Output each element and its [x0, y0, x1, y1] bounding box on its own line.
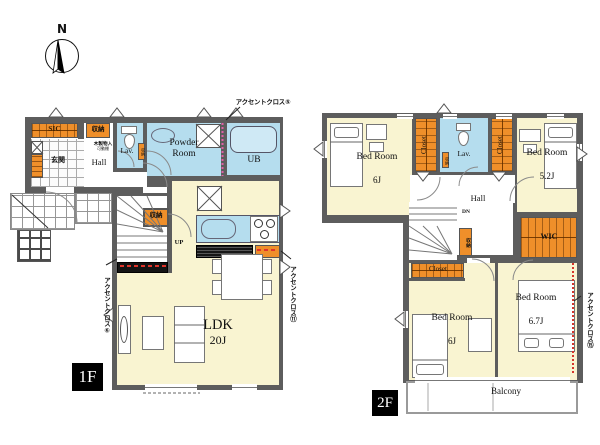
f2-bed-sw-size-label: 6J — [429, 336, 475, 346]
f2-badge: 2F — [372, 390, 398, 416]
f2-bed-ne-pillow — [548, 127, 573, 138]
f2-badge-text: 2F — [377, 395, 393, 412]
f1-genkan-label: 玄関 — [44, 157, 72, 165]
dining-chair-1 — [212, 259, 222, 274]
balcony-label: Balcony — [478, 386, 534, 396]
f1-lav-label: Lav. — [116, 147, 138, 155]
f1-stairs-room — [117, 196, 167, 264]
f2-window-north-1 — [397, 114, 413, 119]
f1-lav-storage-label: 収納 — [139, 144, 145, 160]
dining-chair-4 — [262, 280, 272, 295]
f1-stair-storage-label: 収納 — [144, 212, 168, 219]
f1-sic-label: SIC — [32, 125, 77, 133]
f1-accent-top-label: アクセントクロス⑤ — [232, 99, 294, 106]
f2-stair-storage-label: 収納 — [461, 232, 470, 253]
floor-plan-canvas: N — [0, 0, 600, 445]
stove-burner-1 — [254, 219, 263, 228]
f1-badge: 1F — [72, 363, 103, 391]
f1-corridor — [113, 172, 147, 187]
dining-chair-3 — [262, 259, 272, 274]
f2-window-west-1 — [322, 141, 327, 158]
f2-accent-right-label: アクセントクロス⑮ — [582, 276, 593, 364]
f1-hall-label: Hall — [85, 158, 113, 168]
approach-tiles-main — [10, 193, 75, 230]
f1-miniwall — [78, 123, 84, 139]
f1-wood-shelf-sub-label: 可動棚 — [93, 147, 113, 151]
toilet-tank-1f-icon — [121, 126, 137, 134]
f1-window-south-2 — [232, 384, 257, 390]
f1-entrance-door-gap — [46, 187, 74, 193]
f2-bed-se-pillow-1 — [524, 338, 539, 348]
f2-closet-s-label: Closet — [412, 266, 464, 274]
f2-bed-se-size-label: 6.7J — [511, 316, 561, 326]
fridge-hatch-box — [197, 186, 222, 211]
f1-badge-text: 1F — [79, 367, 97, 387]
compass-north-label: N — [54, 23, 70, 36]
f2-bed-se-pillow-2 — [549, 338, 564, 348]
f1-shoe-shelf — [31, 154, 43, 178]
stove-burner-3 — [260, 230, 269, 239]
f1-ldk-label: LDK — [196, 317, 240, 333]
f2-closet-e-label: Closet — [497, 118, 507, 172]
stove-burner-2 — [266, 219, 275, 228]
tv-accent-wall — [117, 262, 168, 273]
f2-window-east-1 — [577, 144, 582, 161]
f2-lav-label: Lav. — [452, 150, 476, 158]
f2-window-north-4 — [547, 114, 564, 119]
f1-up-label: UP — [171, 239, 187, 246]
f2-dn-label: DN — [458, 209, 474, 215]
f2-closet-s-wall — [409, 278, 465, 281]
approach-steps — [17, 230, 51, 262]
f1-accent-left-label: アクセントクロス⑥ — [99, 264, 110, 348]
f2-stairs-room — [409, 202, 457, 260]
f2-bed-ne-label: Bed Room — [524, 148, 570, 159]
dining-chair-2 — [212, 280, 222, 295]
f2-wic-label: WIC — [535, 233, 563, 242]
f2-desk-ne — [519, 129, 541, 142]
f1-hall-door-gap — [143, 187, 167, 193]
f2-lav-storage-label: 収納 — [443, 153, 449, 169]
f2-bed-se-label: Bed Room — [511, 293, 561, 304]
f2-hall-label: Hall — [464, 194, 492, 204]
f2-window-west-2 — [403, 311, 408, 328]
f2-window-north-2 — [443, 114, 457, 119]
f1-ldk-size-label: 20J — [196, 334, 240, 347]
f2-chair-nw — [369, 142, 384, 152]
f1-powder-room-label: Powder Room — [160, 138, 208, 159]
f2-bed-sw-door-gap — [467, 258, 490, 263]
dining-table — [221, 254, 263, 300]
f2-bed-nw-size-label: 6J — [354, 175, 400, 185]
f1-storage-top-label: 収納 — [86, 126, 110, 133]
f1-accent-right-label: アクセントクロス⑪ — [285, 252, 296, 336]
toilet-tank-2f-icon — [456, 123, 471, 131]
coffee-table — [142, 316, 164, 350]
f2-desk-nw — [366, 124, 387, 140]
ub-bathtub-icon — [230, 126, 277, 153]
approach-tiles-porch — [75, 193, 112, 224]
balcony-window-band — [415, 377, 570, 383]
tv-icon — [120, 316, 128, 343]
kitchen-sink-icon — [201, 219, 236, 239]
f2-bed-nw-pillow — [334, 127, 359, 138]
f2-bed-sw-label: Bed Room — [429, 313, 475, 324]
f1-ub-label: UB — [243, 155, 265, 166]
f1-shoe-box-top — [31, 141, 43, 154]
f2-bed-ne-size-label: 5.2J — [524, 171, 570, 181]
f2-bed-sw-pillow — [416, 364, 444, 375]
compass-circle — [45, 39, 79, 73]
f2-closet-w-label: Closet — [421, 118, 431, 172]
f2-bed-nw-label: Bed Room — [354, 152, 400, 163]
f1-window-south-1 — [145, 384, 197, 390]
